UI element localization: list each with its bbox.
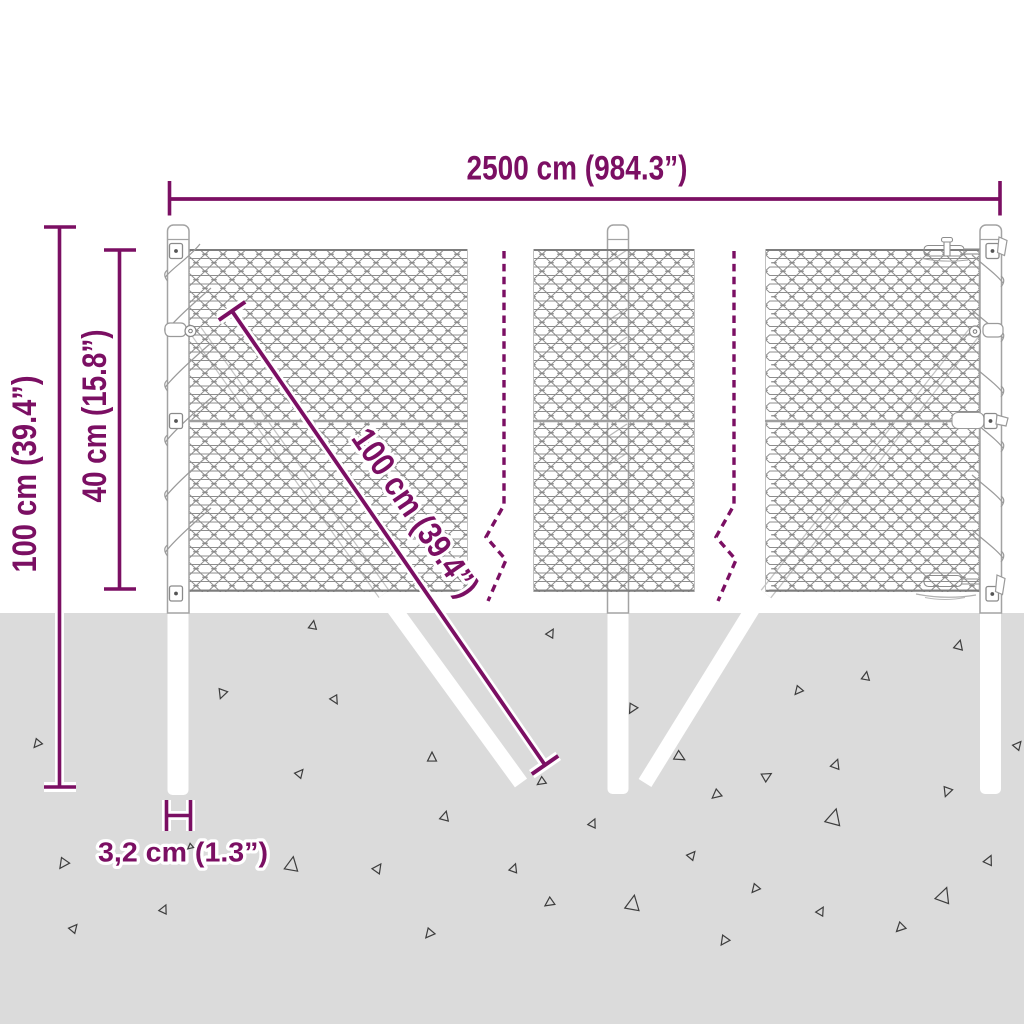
- svg-text:40 cm (15.8”): 40 cm (15.8”): [76, 330, 114, 503]
- svg-text:2500 cm (984.3”): 2500 cm (984.3”): [467, 150, 688, 188]
- svg-text:100 cm (39.4”): 100 cm (39.4”): [6, 376, 44, 573]
- svg-text:3,2 cm (1.3”): 3,2 cm (1.3”): [98, 837, 268, 868]
